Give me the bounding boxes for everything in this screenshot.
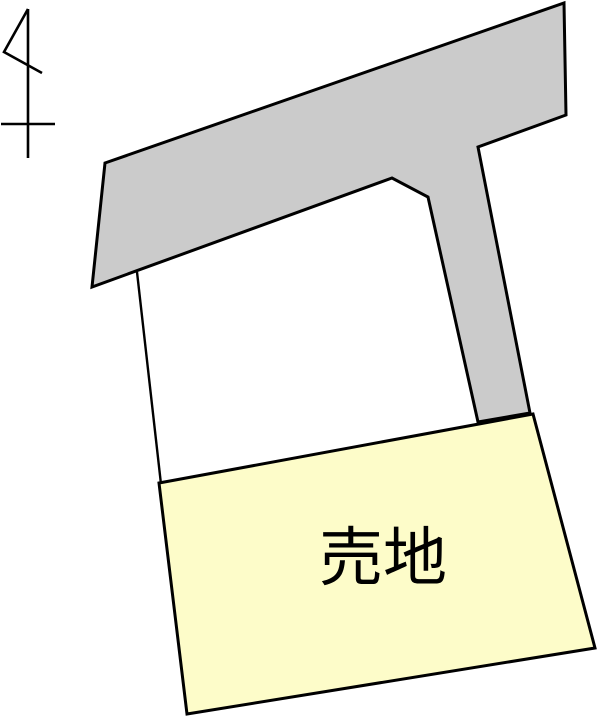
site-plan-drawing: 売地 [0,0,600,718]
north-arrow-icon [1,9,55,158]
road-shape [92,3,566,422]
site-plan: 売地 [0,0,600,718]
north-arrow-flag [4,9,42,73]
sale-plot-label: 売地 [319,522,447,594]
